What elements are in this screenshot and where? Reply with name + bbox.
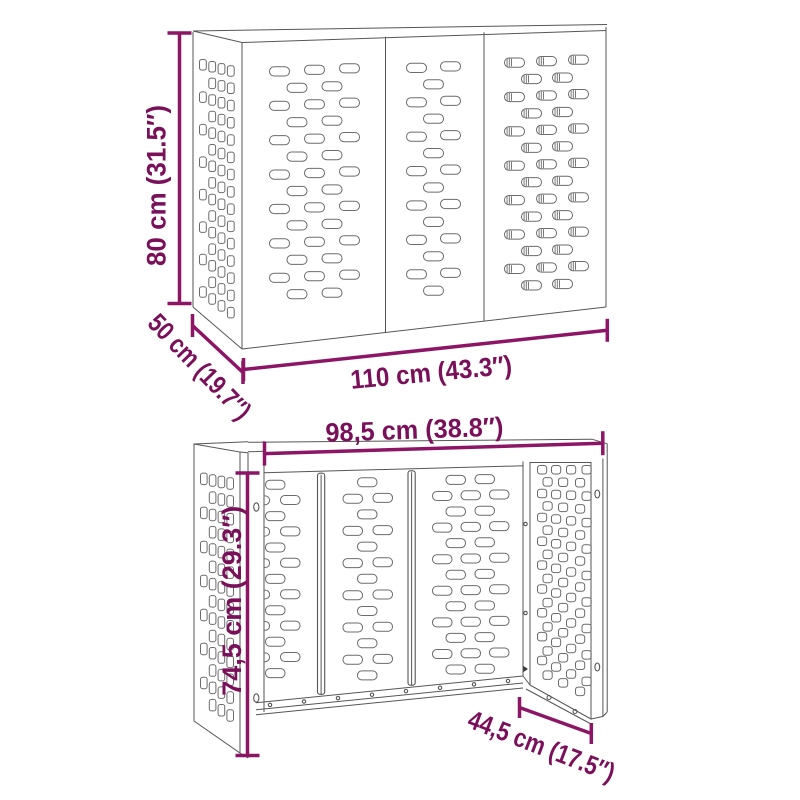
svg-text:98,5 cm (38.8″): 98,5 cm (38.8″) <box>325 412 504 448</box>
svg-text:74,5 cm (29.3″): 74,5 cm (29.3″) <box>217 506 247 696</box>
svg-text:80 cm (31.5″): 80 cm (31.5″) <box>141 105 171 266</box>
